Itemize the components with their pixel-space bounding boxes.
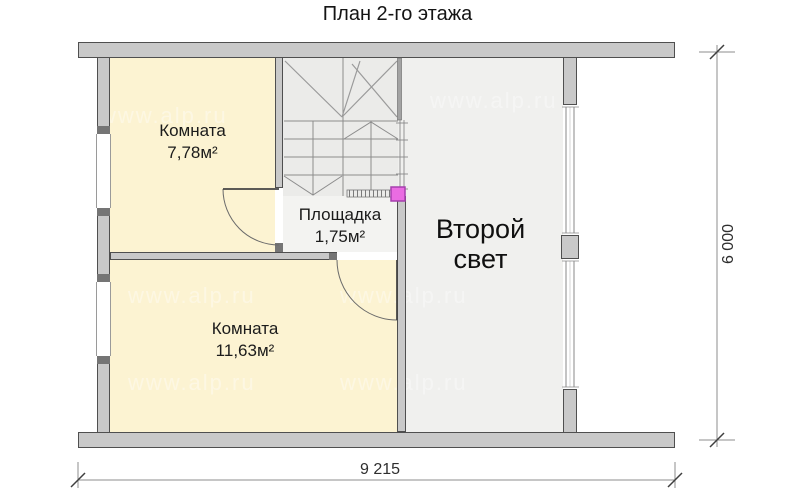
window-jamb-cap — [97, 274, 110, 282]
floor-plan: План 2-го этажа www.alp.ru www.alp.ru ww… — [0, 0, 795, 496]
room-bottom-area-value: 11,63м² — [110, 340, 380, 362]
wall-left — [97, 57, 110, 433]
door-jamb-cap — [329, 253, 337, 260]
partition-room-top-stairs — [275, 57, 283, 188]
landing-label: Площадка 1,75м² — [283, 204, 397, 248]
window-left-upper — [96, 134, 111, 208]
wall-right-top-block — [563, 57, 577, 105]
room-bottom-label: Комната 11,63м² — [110, 318, 380, 362]
void-label-line1: Второй — [398, 214, 563, 244]
window-jamb-cap — [97, 126, 110, 134]
dimension-height-label: 6 000 — [720, 209, 738, 279]
landing-area-value: 1,75м² — [283, 226, 397, 248]
room-bottom-name: Комната — [110, 318, 380, 340]
partition-rooms — [110, 252, 337, 260]
dimension-width-label: 9 215 — [330, 461, 430, 479]
landing-name: Площадка — [283, 204, 397, 226]
wall-bottom — [78, 432, 675, 448]
stairs-area — [283, 58, 398, 196]
window-jamb-cap — [97, 208, 110, 216]
void-label: Второй свет — [398, 214, 563, 274]
room-top-name: Комната — [110, 120, 275, 142]
window-left-lower — [96, 282, 111, 356]
page-title: План 2-го этажа — [0, 3, 795, 26]
wall-top — [78, 42, 675, 58]
window-mullion — [561, 235, 579, 259]
room-top-area-value: 7,78м² — [110, 142, 275, 164]
wall-right-bottom-block — [563, 389, 577, 433]
void-label-line2: свет — [398, 244, 563, 274]
room-top-label: Комната 7,78м² — [110, 120, 275, 164]
window-jamb-cap — [97, 356, 110, 364]
